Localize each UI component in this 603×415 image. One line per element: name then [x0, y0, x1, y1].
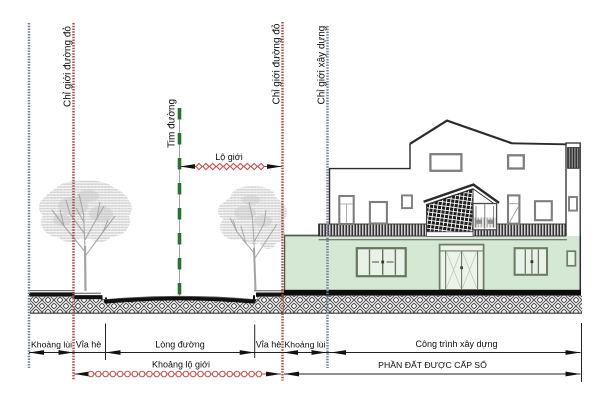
svg-text:Chỉ giới đường đỏ: Chỉ giới đường đỏ — [61, 26, 73, 107]
svg-text:Chỉ giới đường đỏ: Chỉ giới đường đỏ — [270, 23, 282, 104]
svg-text:PHẦN ĐẤT ĐƯỢC CẤP SỔ: PHẦN ĐẤT ĐƯỢC CẤP SỔ — [378, 359, 487, 370]
svg-text:Vỉa hè: Vỉa hè — [76, 340, 102, 350]
svg-text:Vỉa hè: Vỉa hè — [256, 340, 282, 350]
svg-text:Khoảng lùi: Khoảng lùi — [31, 340, 72, 350]
svg-text:Chỉ giới xây dựng: Chỉ giới xây dựng — [315, 26, 327, 105]
svg-text:Khoảng lùi: Khoảng lùi — [284, 340, 325, 350]
svg-text:Lòng đường: Lòng đường — [155, 340, 204, 350]
svg-text:Công trình xây dựng: Công trình xây dựng — [415, 339, 497, 349]
svg-text:Lộ giới: Lộ giới — [215, 152, 242, 162]
svg-text:Khoảng lộ giới: Khoảng lộ giới — [152, 360, 210, 370]
svg-text:Tim đường: Tim đường — [167, 99, 178, 148]
